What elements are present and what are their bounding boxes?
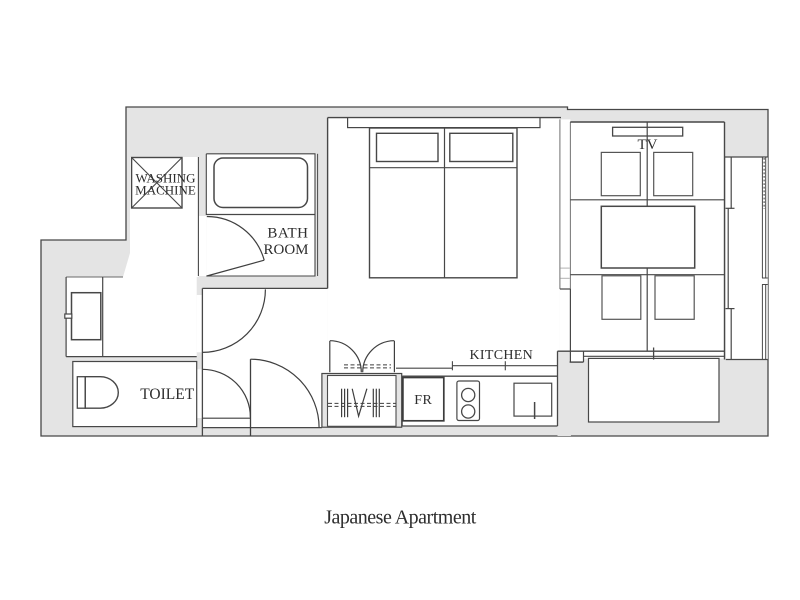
svg-text:MACHINE: MACHINE [135, 183, 196, 198]
svg-text:KITCHEN: KITCHEN [470, 348, 534, 363]
svg-text:TOILET: TOILET [140, 386, 194, 403]
svg-text:FR: FR [414, 393, 432, 408]
svg-text:BATH: BATH [267, 226, 308, 242]
svg-text:ROOM: ROOM [263, 242, 308, 258]
svg-text:Japanese Apartment: Japanese Apartment [324, 507, 476, 529]
svg-text:TV: TV [638, 137, 658, 153]
